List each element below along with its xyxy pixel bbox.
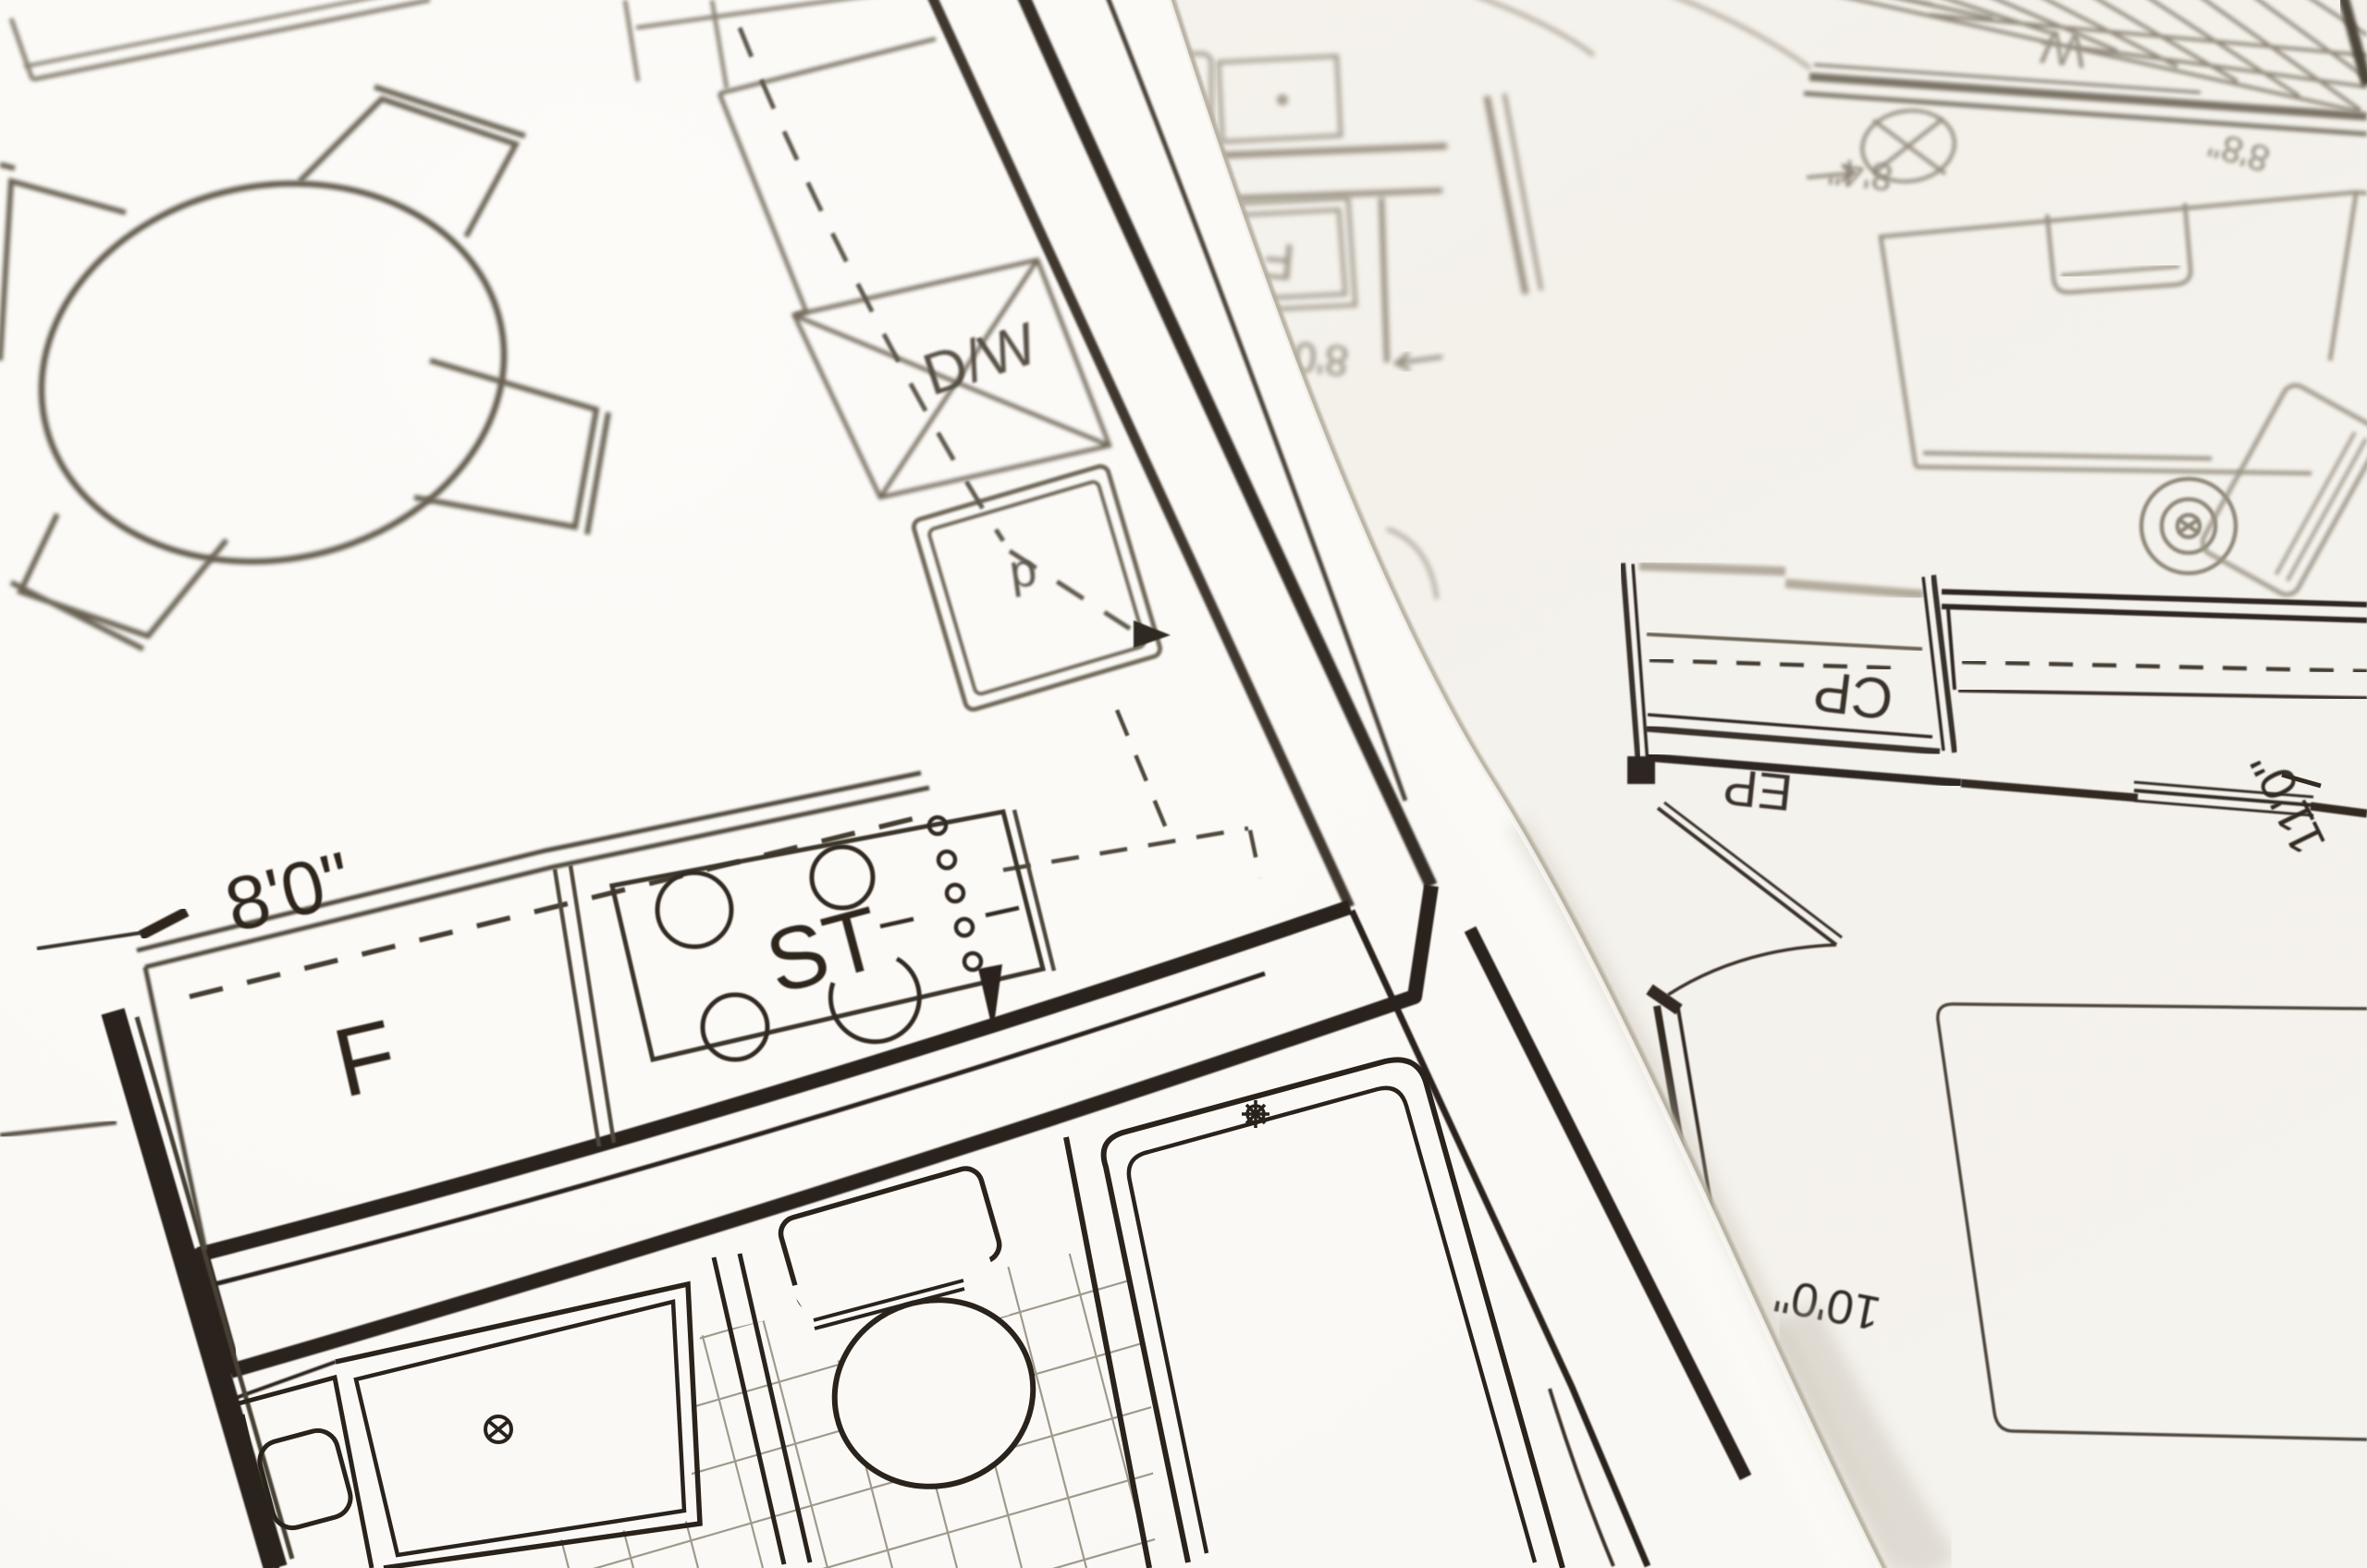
svg-text:8'4": 8'4" <box>1826 150 1895 200</box>
svg-text:CP: CP <box>1809 658 1896 731</box>
svg-text:W: W <box>2038 18 2090 78</box>
svg-text:EP: EP <box>1721 757 1796 822</box>
